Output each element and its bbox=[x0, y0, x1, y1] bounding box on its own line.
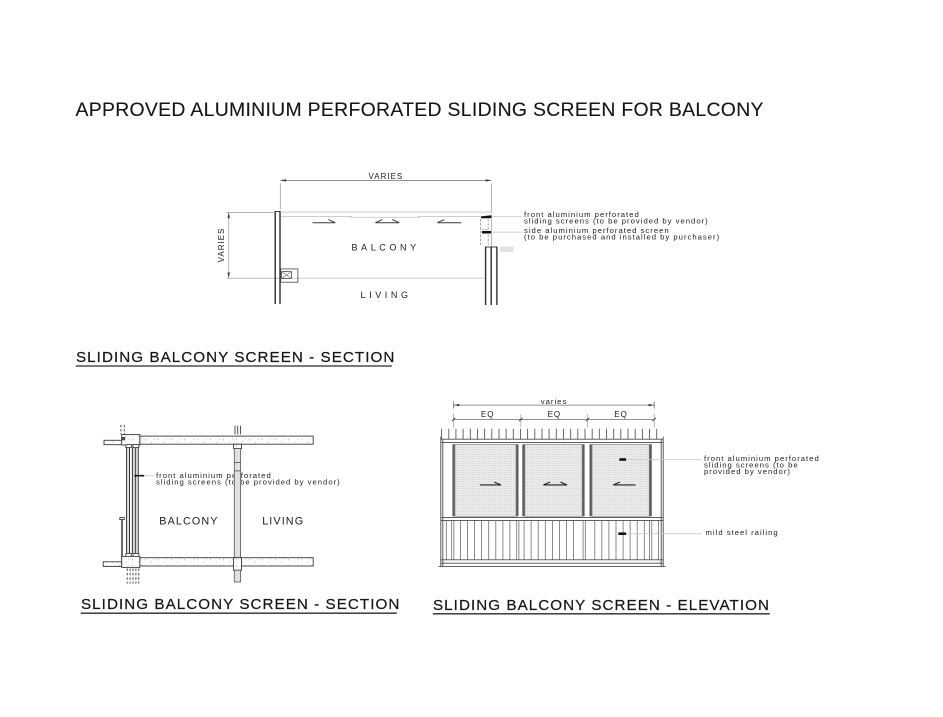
svg-text:LIVING: LIVING bbox=[361, 290, 412, 300]
svg-text:EQ: EQ bbox=[614, 410, 628, 419]
svg-text:LIVING: LIVING bbox=[262, 516, 304, 528]
svg-text:varies: varies bbox=[541, 397, 568, 406]
svg-text:VARIES: VARIES bbox=[369, 172, 404, 181]
svg-text:BALCONY: BALCONY bbox=[159, 516, 218, 528]
svg-text:SLIDING BALCONY SCREEN - SECTI: SLIDING BALCONY SCREEN - SECTION bbox=[81, 596, 400, 613]
svg-text:SLIDING BALCONY SCREEN - SECTI: SLIDING BALCONY SCREEN - SECTION bbox=[76, 349, 395, 366]
svg-text:SLIDING BALCONY SCREEN - ELEVA: SLIDING BALCONY SCREEN - ELEVATION bbox=[433, 597, 770, 614]
svg-text:APPROVED ALUMINIUM PERFORATED: APPROVED ALUMINIUM PERFORATED SLIDING SC… bbox=[76, 99, 764, 121]
svg-text:mild steel railing: mild steel railing bbox=[706, 528, 779, 537]
svg-text:EQ: EQ bbox=[481, 410, 495, 419]
svg-text:VARIES: VARIES bbox=[217, 228, 226, 263]
svg-text:BALCONY: BALCONY bbox=[352, 242, 420, 252]
svg-text:EQ: EQ bbox=[548, 410, 562, 419]
